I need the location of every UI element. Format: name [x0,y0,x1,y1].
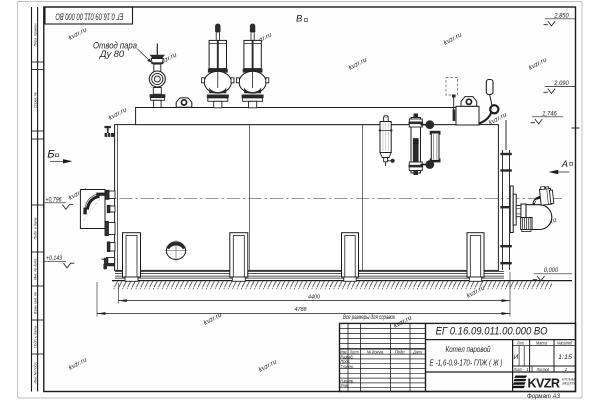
svg-text:Инв. № дубл.: Инв. № дубл. [33,258,37,280]
svg-text:2,850: 2,850 [553,12,569,19]
svg-text:Утв.: Утв. [341,383,349,388]
svg-text:Дата: Дата [412,349,422,354]
svg-text:Подп.: Подп. [395,349,406,354]
svg-text:Лист: Лист [513,367,523,372]
svg-text:Инв. № подл.: Инв. № подл. [33,362,37,384]
svg-text:1,746: 1,746 [542,110,557,117]
svg-text:Справ. №: Справ. № [33,92,37,108]
svg-text:И: И [513,354,518,361]
svg-text:1:15: 1:15 [558,354,572,361]
svg-text:А: А [561,158,568,169]
svg-text:Масштаб: Масштаб [557,341,572,346]
svg-text:4400: 4400 [308,294,320,300]
svg-text:Е -1,6-0,9-170- ГЛЖ ( Ж ): Е -1,6-0,9-170- ГЛЖ ( Ж ) [430,357,503,367]
svg-text:Подп. и дата: Подп. и дата [33,218,37,240]
svg-text:Масса: Масса [536,341,548,346]
svg-text:ЕГ 0.16.09.011.00.000 ВО: ЕГ 0.16.09.011.00.000 ВО [55,11,123,22]
svg-text:2,090: 2,090 [553,80,569,87]
svg-text:Подп. и дата: Подп. и дата [33,326,37,348]
svg-text:KVZR: KVZR [528,377,560,391]
svg-text:1: 1 [526,367,528,372]
svg-text:Т.контр.: Т.контр. [341,364,355,369]
svg-text:Формат А3: Формат А3 [527,393,560,400]
svg-text:№ докум.: № докум. [367,349,385,354]
svg-text:ЗАВОД РЭП: ЗАВОД РЭП [562,382,575,386]
svg-text:В: В [296,12,302,23]
svg-text:Котел паровой: Котел паровой [446,344,491,354]
svg-text:Листов: Листов [536,367,550,372]
svg-text:Лит.: Лит. [516,341,524,346]
svg-text:Все размеры для справок: Все размеры для справок [343,313,396,321]
svg-text:0,000: 0,000 [544,267,559,274]
svg-text:4788: 4788 [295,307,307,313]
svg-text:Перв. примен.: Перв. примен. [33,23,37,47]
svg-text:Ду 80: Ду 80 [99,49,124,59]
svg-text:Б: Б [47,148,55,160]
svg-text:Взам. инв. №: Взам. инв. № [33,292,37,314]
svg-text:ЕГ 0.16.09.011.00.000 ВО: ЕГ 0.16.09.011.00.000 ВО [436,325,548,337]
